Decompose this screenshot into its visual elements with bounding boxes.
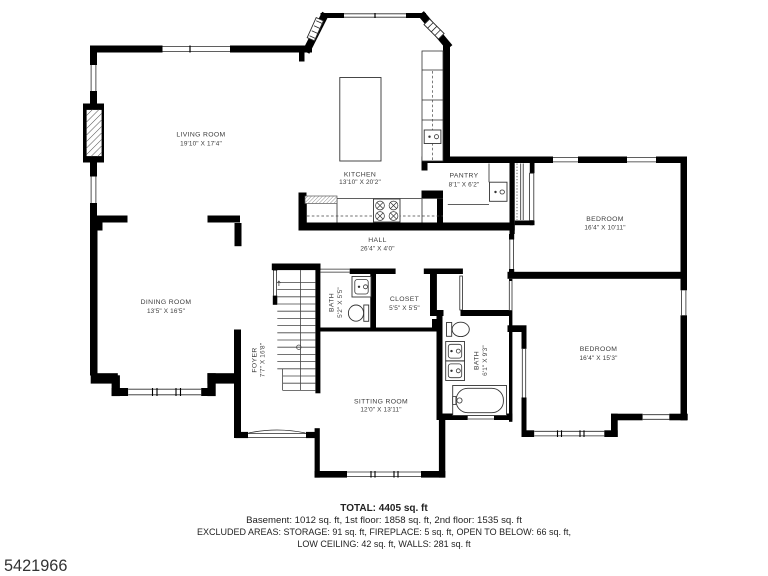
svg-text:19'10" X 17'4": 19'10" X 17'4" (180, 141, 222, 148)
svg-text:DINING ROOM: DINING ROOM (141, 299, 192, 306)
svg-text:PANTRY: PANTRY (449, 172, 478, 179)
svg-text:FOYER: FOYER (252, 347, 259, 372)
svg-text:5'5" X 5'5": 5'5" X 5'5" (389, 305, 420, 312)
svg-text:7'7" X 16'8": 7'7" X 16'8" (260, 343, 267, 377)
svg-text:BEDROOM: BEDROOM (580, 346, 618, 353)
svg-text:KITCHEN: KITCHEN (344, 171, 376, 178)
svg-text:16'4" X 10'11": 16'4" X 10'11" (584, 225, 625, 232)
svg-text:BATH: BATH (329, 293, 336, 312)
svg-text:SITTING ROOM: SITTING ROOM (354, 399, 408, 406)
svg-text:BATH: BATH (474, 351, 481, 370)
svg-text:8'1" X 6'2": 8'1" X 6'2" (449, 182, 480, 189)
svg-text:26'4" X 4'0": 26'4" X 4'0" (360, 245, 394, 252)
svg-text:LOW CEILING: 42 sq. ft, WALLS:: LOW CEILING: 42 sq. ft, WALLS: 281 sq. f… (297, 539, 471, 549)
svg-text:12'0" X 13'11": 12'0" X 13'11" (360, 407, 401, 414)
svg-text:5421966: 5421966 (4, 557, 67, 575)
svg-text:BEDROOM: BEDROOM (586, 216, 624, 223)
svg-text:5'2" X 5'5": 5'2" X 5'5" (337, 287, 344, 318)
svg-text:13'5" X 16'5": 13'5" X 16'5" (147, 308, 185, 315)
svg-text:HALL: HALL (368, 237, 386, 244)
svg-text:EXCLUDED AREAS: STORAGE: 91 sq: EXCLUDED AREAS: STORAGE: 91 sq. ft, FIRE… (197, 527, 571, 537)
svg-text:CLOSET: CLOSET (390, 296, 419, 303)
svg-text:Basement: 1012 sq. ft, 1st flo: Basement: 1012 sq. ft, 1st floor: 1858 s… (246, 515, 522, 526)
svg-text:13'10" X 20'2": 13'10" X 20'2" (339, 179, 381, 186)
svg-text:LIVING ROOM: LIVING ROOM (176, 131, 225, 138)
svg-text:TOTAL: 4405 sq. ft: TOTAL: 4405 sq. ft (340, 503, 428, 514)
svg-text:16'4" X 15'3": 16'4" X 15'3" (579, 355, 617, 362)
svg-text:6'1" X 9'3": 6'1" X 9'3" (482, 345, 489, 376)
